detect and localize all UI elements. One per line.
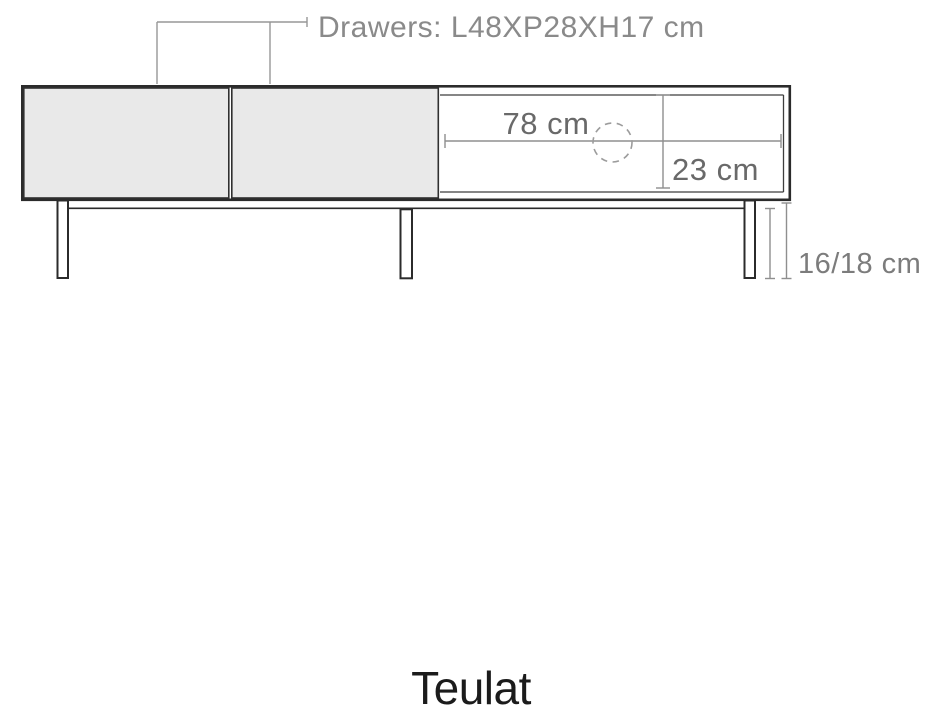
leg-left bbox=[58, 201, 69, 279]
drawer-leader-lines bbox=[157, 17, 307, 84]
drawer-front-right bbox=[232, 88, 438, 198]
leg-right bbox=[745, 201, 756, 279]
tv-stand-dimension-drawing: Drawers: L48XP28XH17 cm 78 cm bbox=[0, 0, 930, 720]
leg-middle bbox=[401, 209, 413, 278]
leg-height-dimension: 16/18 cm bbox=[765, 203, 921, 280]
brand-logo: Teulat bbox=[411, 662, 531, 714]
leg-height-dimension-label: 16/18 cm bbox=[798, 248, 921, 280]
drawer-front-left bbox=[24, 88, 229, 198]
shelf-height-dimension-label: 23 cm bbox=[672, 152, 759, 187]
furniture-dimension-diagram-page: Drawers: L48XP28XH17 cm 78 cm bbox=[0, 0, 930, 720]
drawers-dimension-label: Drawers: L48XP28XH17 cm bbox=[318, 11, 705, 44]
width-dimension-label: 78 cm bbox=[503, 106, 590, 141]
